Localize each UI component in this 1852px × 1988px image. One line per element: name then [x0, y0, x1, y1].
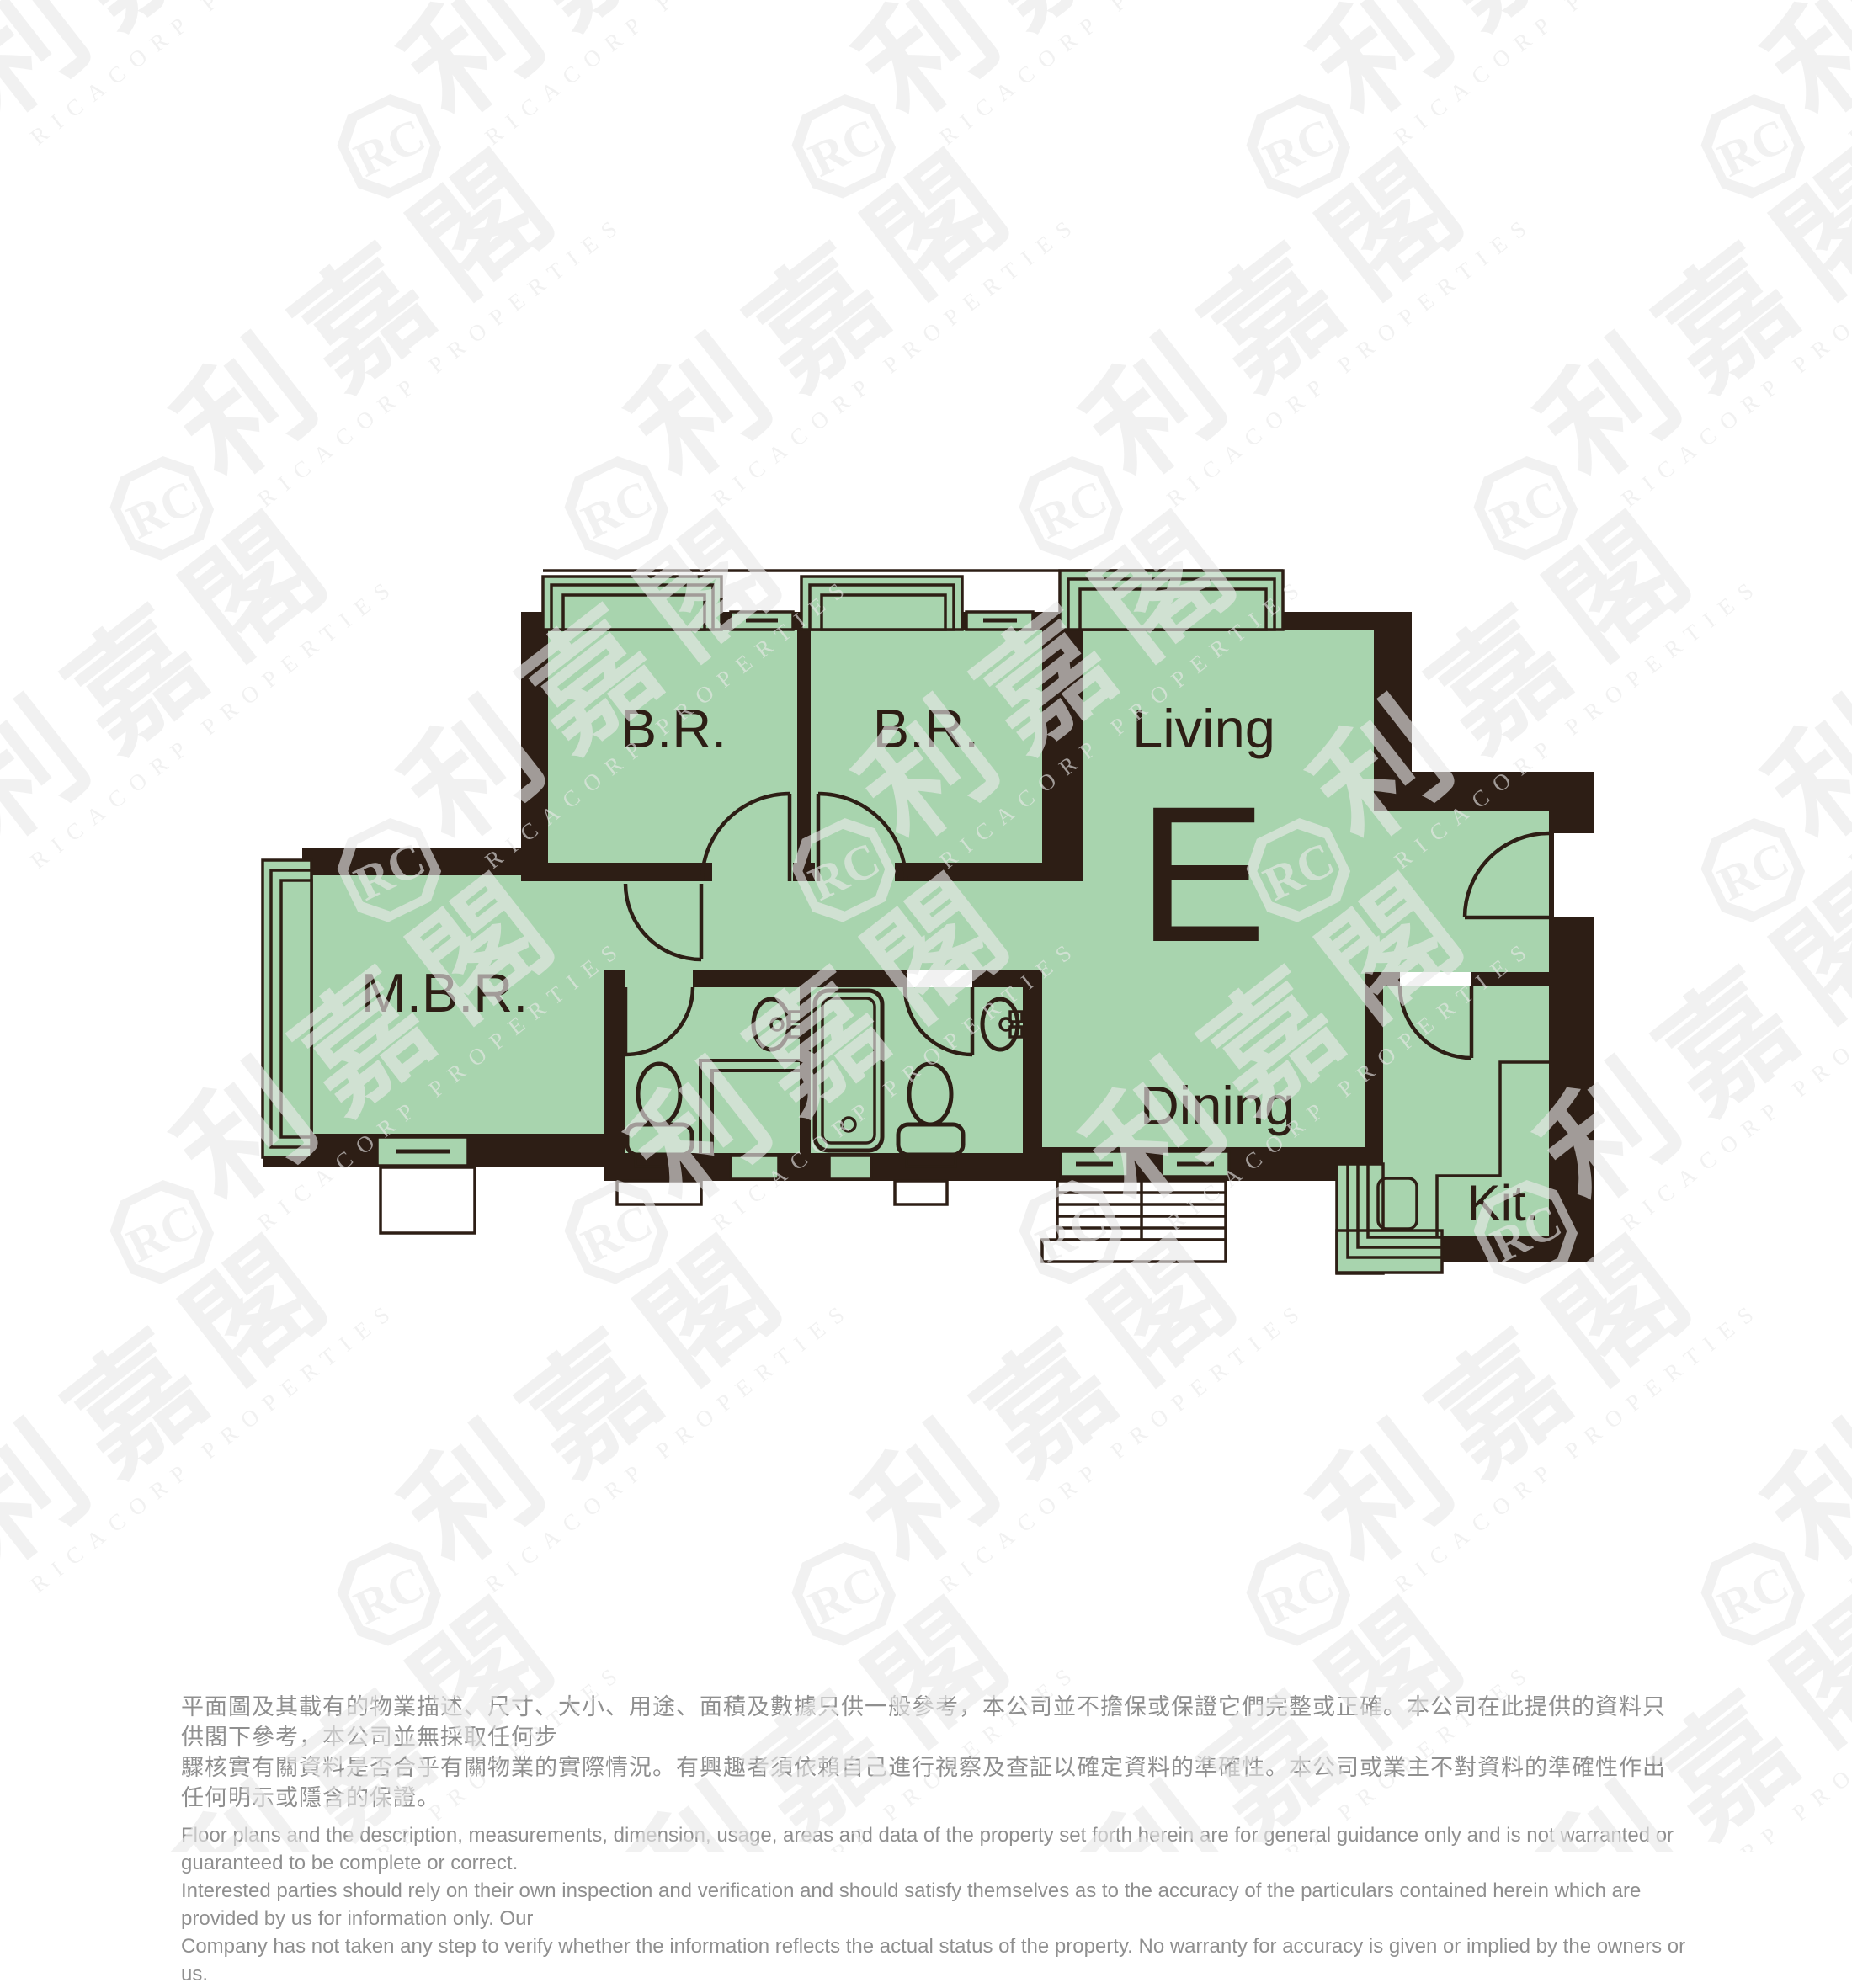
disclaimer-zh-line1: 平面圖及其載有的物業描述、尺寸、大小、用途、面積及數據只供一般參考，本公司並不擔…: [181, 1692, 1688, 1752]
wall-bath-a-top: [693, 970, 800, 987]
wall-bath-divider: [800, 970, 811, 1153]
wall-br-divider: [797, 630, 811, 881]
floor-plan: B.R. B.R. Living E M.B.R. Dining Kit.: [0, 0, 1852, 1852]
wall-right-lower: [1549, 917, 1594, 1262]
ac-box-bath-b: [895, 1181, 947, 1204]
wall-bath-b-top-right: [972, 970, 1023, 987]
wall-mbr-top: [302, 848, 548, 875]
wall-br2-bottom: [895, 863, 1083, 881]
wall-living-right: [1374, 630, 1412, 811]
ac-platforms: [381, 1167, 1226, 1262]
wall-entrance-jamb-line: [1549, 833, 1554, 917]
sill-bath-b: [829, 1156, 871, 1179]
page: { "floorplan": { "unit_label": "E", "roo…: [0, 0, 1852, 1852]
window-br1: [543, 577, 721, 630]
window-br2: [801, 577, 962, 630]
wall-br1-bottom: [521, 863, 712, 881]
louvre-grid: [1042, 1181, 1226, 1262]
wall-br1-left: [521, 630, 548, 881]
label-br1: B.R.: [620, 698, 726, 759]
disclaimer-zh-line2: 驟核實有關資料是否合乎有關物業的實際情況。有興趣者須依賴自己進行視察及查証以確定…: [181, 1752, 1688, 1813]
disclaimer-en-line3: Company has not taken any step to verify…: [181, 1932, 1688, 1988]
sill-bath-a: [731, 1156, 779, 1179]
wall-kitchen-top-right: [1471, 972, 1549, 986]
label-mbr: M.B.R.: [361, 962, 529, 1023]
wall-br2-right: [1042, 612, 1083, 881]
disclaimer-en-line2: Interested parties should rely on their …: [181, 1877, 1688, 1932]
wall-bath-b-top-left: [811, 970, 907, 987]
bay-window-mbr: [263, 860, 311, 1157]
disclaimer: 平面圖及其載有的物業描述、尺寸、大小、用途、面積及數據只供一般參考，本公司並不擔…: [181, 1692, 1688, 1988]
wall-bath-b-right: [1023, 970, 1042, 1181]
wall-kitchen-left: [1365, 972, 1383, 1164]
wall-step-top-right: [1412, 772, 1594, 811]
label-kitchen: Kit.: [1467, 1175, 1541, 1231]
ac-box-mbr: [381, 1167, 475, 1233]
label-br2: B.R.: [873, 698, 979, 759]
label-unit: E: [1137, 766, 1266, 982]
window-living: [1060, 571, 1283, 630]
wall-right-upper: [1549, 811, 1594, 833]
disclaimer-en-block: Floor plans and the description, measure…: [181, 1821, 1688, 1988]
label-living: Living: [1132, 698, 1275, 759]
ac-box-bath-a: [617, 1181, 701, 1204]
label-dining: Dining: [1140, 1075, 1295, 1136]
disclaimer-en-line1: Floor plans and the description, measure…: [181, 1821, 1688, 1877]
wall-br-divider-foot: [793, 863, 815, 881]
